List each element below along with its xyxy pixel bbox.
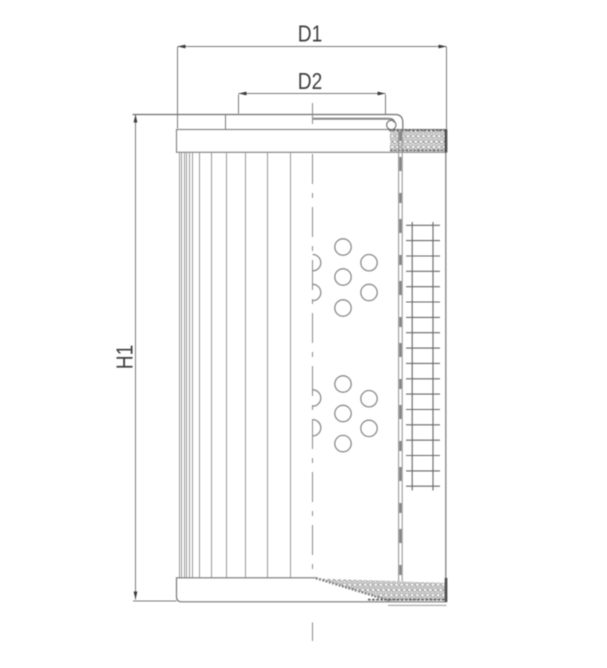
svg-text:D1: D1 xyxy=(298,21,323,47)
svg-text:H1: H1 xyxy=(111,345,137,370)
svg-text:D2: D2 xyxy=(298,68,323,94)
